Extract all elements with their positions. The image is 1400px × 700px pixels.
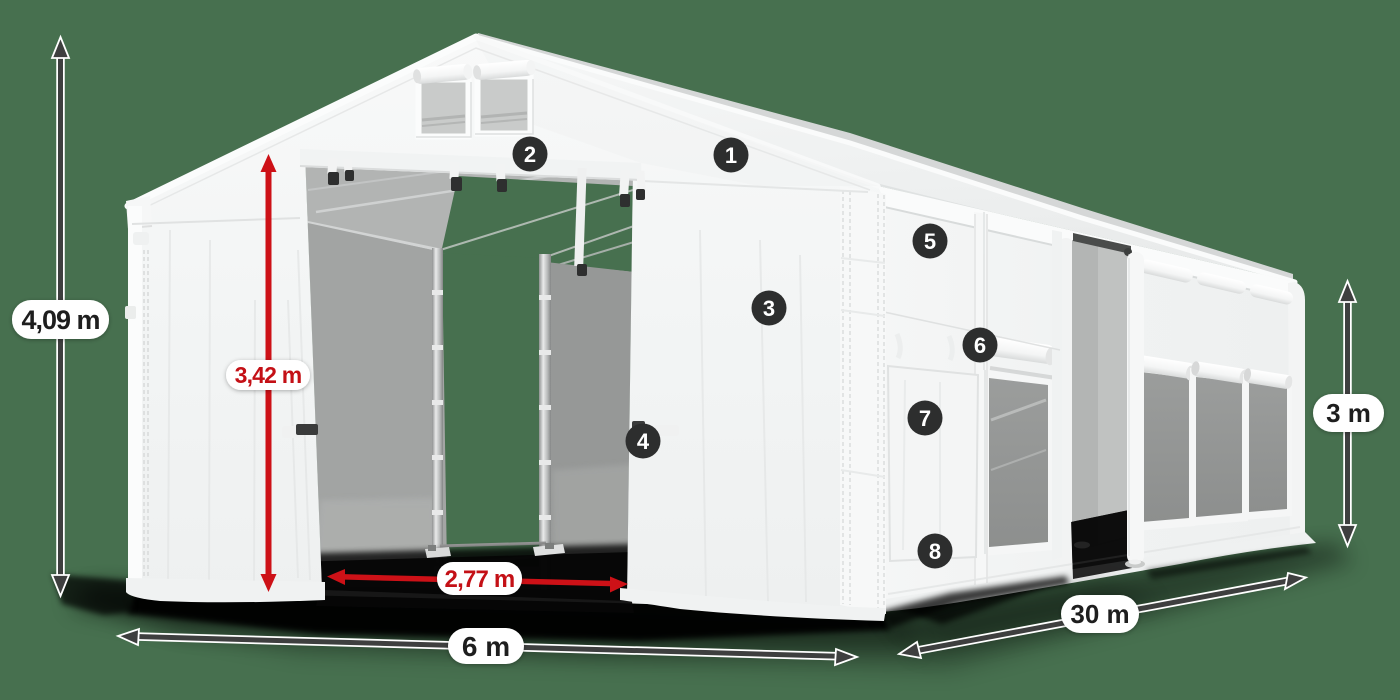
svg-text:3 m: 3 m [1326,398,1371,428]
svg-text:2,77 m: 2,77 m [445,566,515,593]
svg-text:3: 3 [763,296,775,321]
svg-text:7: 7 [919,406,931,431]
svg-text:4,09 m: 4,09 m [21,305,99,335]
svg-text:30 m: 30 m [1070,599,1129,629]
svg-text:5: 5 [924,229,936,254]
svg-text:6 m: 6 m [462,631,510,662]
svg-text:8: 8 [929,539,941,564]
svg-text:3,42 m: 3,42 m [235,362,302,388]
svg-text:1: 1 [725,143,737,168]
svg-text:2: 2 [524,142,536,167]
svg-text:6: 6 [974,333,986,358]
svg-text:4: 4 [637,429,650,454]
